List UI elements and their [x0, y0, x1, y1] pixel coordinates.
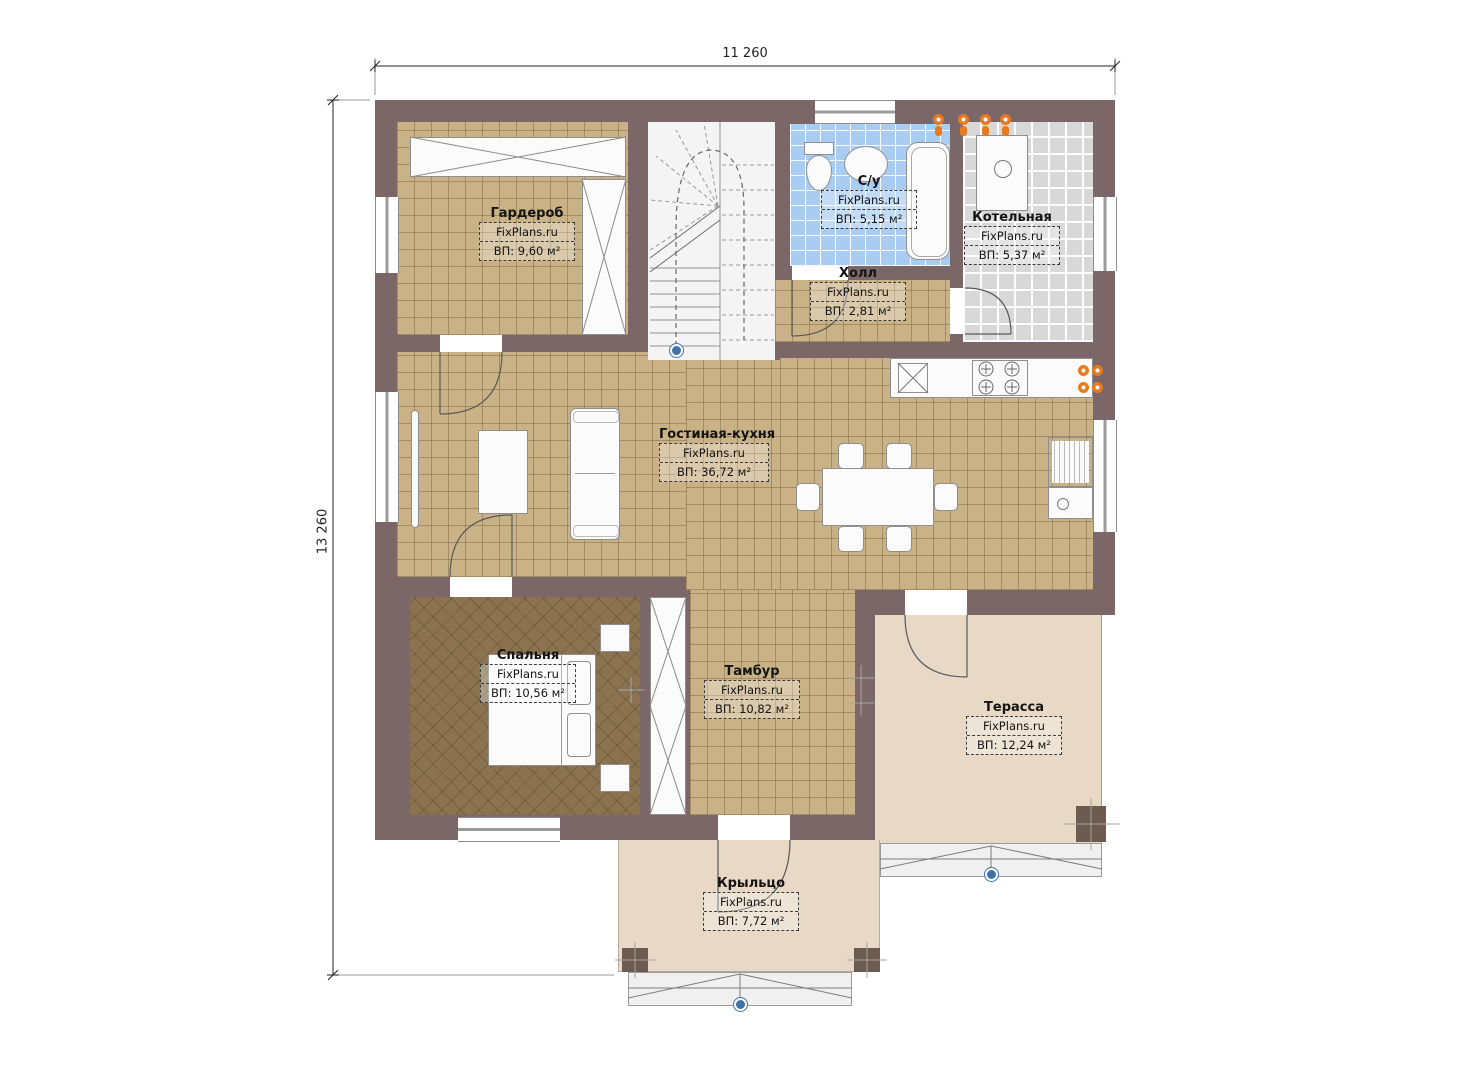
room-info-box: FixPlans.ru ВП: 9,60 м²: [479, 222, 575, 261]
room-area: ВП: 2,81 м²: [811, 301, 905, 320]
room-floor-living-left: [397, 352, 686, 577]
heating-valve-icon: [933, 114, 944, 125]
room-name: Тамбур: [704, 664, 800, 679]
room-area: ВП: 5,15 м²: [822, 209, 916, 228]
kitchen-cabinet-right: [1048, 487, 1093, 519]
door-gap-terrace: [905, 590, 967, 615]
room-label-holl: Холл FixPlans.ru ВП: 2,81 м²: [810, 266, 906, 321]
heating-valve-icon: [1002, 126, 1009, 136]
watermark-text: FixPlans.ru: [704, 893, 798, 911]
room-area: ВП: 9,60 м²: [480, 241, 574, 260]
window-garderob-left: [375, 197, 399, 273]
entry-point-marker: [670, 344, 683, 357]
dining-chair: [886, 526, 912, 552]
terrace-column: [1076, 806, 1106, 842]
nightstand: [600, 764, 630, 792]
room-info-box: FixPlans.ru ВП: 7,72 м²: [703, 892, 799, 931]
heating-valve-icon: [1078, 365, 1089, 376]
room-name: С/у: [821, 174, 917, 189]
room-area: ВП: 10,82 м²: [705, 699, 799, 718]
window-boiler-right: [1093, 197, 1117, 271]
room-label-kryltso: Крыльцо FixPlans.ru ВП: 7,72 м²: [703, 876, 799, 931]
dining-chair: [934, 483, 958, 511]
watermark-text: FixPlans.ru: [965, 227, 1059, 245]
window-bedroom-bottom: [458, 817, 560, 842]
room-info-box: FixPlans.ru ВП: 2,81 м²: [810, 282, 906, 321]
nightstand: [600, 624, 630, 652]
floorplan-page: { "plan": { "dimension_width": "11 260",…: [0, 0, 1474, 1080]
dimension-height-label: 13 260: [316, 487, 331, 577]
sofa-armrest-bottom: [573, 525, 619, 537]
room-name: Гостиная-кухня: [659, 427, 769, 442]
watermark-text: FixPlans.ru: [481, 665, 575, 683]
wardrobe-cabinet-right: [582, 179, 626, 335]
radiator-living-left: [411, 410, 419, 528]
watermark-text: FixPlans.ru: [660, 444, 768, 462]
room-label-tambur: Тамбур FixPlans.ru ВП: 10,82 м²: [704, 664, 800, 719]
room-info-box: FixPlans.ru ВП: 12,24 м²: [966, 716, 1062, 755]
room-label-terassa: Терасса FixPlans.ru ВП: 12,24 м²: [966, 700, 1062, 755]
room-area: ВП: 10,56 м²: [481, 683, 575, 702]
watermark-text: FixPlans.ru: [967, 717, 1061, 735]
dimension-width-label: 11 260: [700, 46, 790, 61]
room-info-box: FixPlans.ru ВП: 36,72 м²: [659, 443, 769, 482]
watermark-text: FixPlans.ru: [811, 283, 905, 301]
heating-valve-icon: [1092, 365, 1103, 376]
room-name: Спальня: [480, 648, 576, 663]
door-gap-boiler: [950, 288, 963, 334]
coffee-table: [478, 430, 528, 514]
room-label-su: С/у FixPlans.ru ВП: 5,15 м²: [821, 174, 917, 229]
door-gap-entrance: [718, 815, 790, 840]
dining-chair: [838, 443, 864, 469]
dimension-top: [370, 58, 1120, 95]
door-gap-garderob: [440, 335, 502, 352]
heating-valve-icon: [935, 126, 942, 136]
room-name: Гардероб: [479, 206, 575, 221]
window-bathroom-top: [815, 100, 895, 124]
room-area: ВП: 7,72 м²: [704, 911, 798, 930]
fridge-unit: [1048, 437, 1093, 487]
window-living-left: [375, 392, 399, 522]
room-info-box: FixPlans.ru ВП: 10,82 м²: [704, 680, 800, 719]
sofa-seat-line: [575, 473, 615, 474]
bed-pillow: [567, 713, 591, 757]
dining-chair: [838, 526, 864, 552]
cabinet-knob: [1057, 498, 1069, 510]
wardrobe-cabinet-tambour: [650, 597, 686, 815]
heating-valve-icon: [982, 126, 989, 136]
heating-valve-icon: [1078, 382, 1089, 393]
room-area: ВП: 36,72 м²: [660, 462, 768, 481]
room-name: Котельная: [964, 210, 1060, 225]
room-area: ВП: 12,24 м²: [967, 735, 1061, 754]
room-label-gostinaya: Гостиная-кухня FixPlans.ru ВП: 36,72 м²: [659, 427, 769, 482]
entry-point-marker: [734, 998, 747, 1011]
room-info-box: FixPlans.ru ВП: 10,56 м²: [480, 664, 576, 703]
kitchen-sink: [898, 363, 928, 393]
heating-valve-icon: [960, 126, 967, 136]
heating-valve-icon: [958, 114, 969, 125]
sofa: [570, 408, 620, 540]
window-kitchen-right: [1093, 420, 1117, 532]
stairs-floor: [648, 122, 775, 360]
watermark-text: FixPlans.ru: [480, 223, 574, 241]
room-label-garderob: Гардероб FixPlans.ru ВП: 9,60 м²: [479, 206, 575, 261]
sofa-armrest-top: [573, 411, 619, 423]
heating-valve-icon: [1092, 382, 1103, 393]
room-info-box: FixPlans.ru ВП: 5,37 м²: [964, 226, 1060, 265]
room-name: Терасса: [966, 700, 1062, 715]
room-label-spalnya: Спальня FixPlans.ru ВП: 10,56 м²: [480, 648, 576, 703]
room-name: Холл: [810, 266, 906, 281]
boiler-unit: [976, 135, 1028, 211]
room-area: ВП: 5,37 м²: [965, 245, 1059, 264]
boiler-dial: [994, 160, 1012, 178]
heating-valve-icon: [980, 114, 991, 125]
wardrobe-cabinet-top: [410, 137, 626, 177]
entry-point-marker: [985, 868, 998, 881]
porch-column-right: [854, 948, 880, 972]
dining-chair: [796, 483, 820, 511]
kitchen-stove: [972, 360, 1028, 396]
watermark-text: FixPlans.ru: [822, 191, 916, 209]
room-label-kotelnaya: Котельная FixPlans.ru ВП: 5,37 м²: [964, 210, 1060, 265]
dining-table: [822, 468, 934, 526]
room-info-box: FixPlans.ru ВП: 5,15 м²: [821, 190, 917, 229]
toilet-tank: [804, 142, 834, 155]
dining-chair: [886, 443, 912, 469]
room-name: Крыльцо: [703, 876, 799, 891]
watermark-text: FixPlans.ru: [705, 681, 799, 699]
porch-column-left: [622, 948, 648, 972]
door-gap-bedroom: [450, 577, 512, 597]
heating-valve-icon: [1000, 114, 1011, 125]
